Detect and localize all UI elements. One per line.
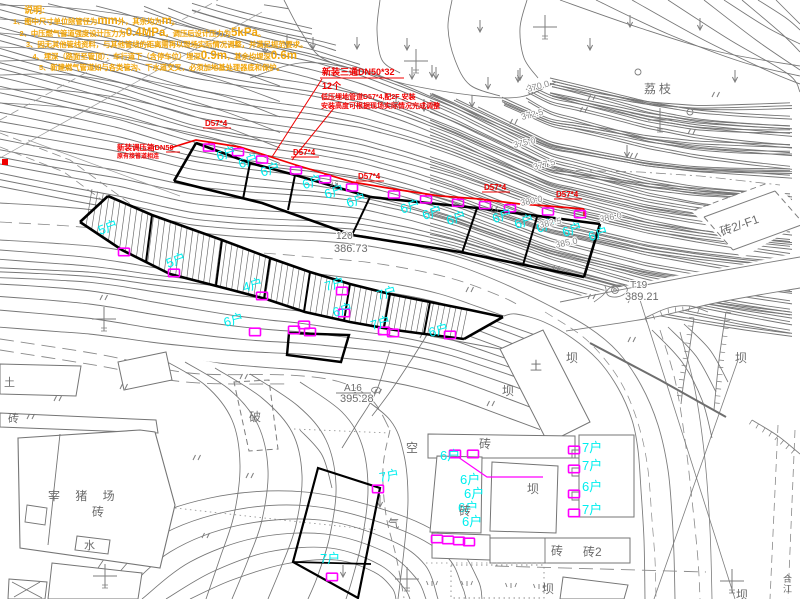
svg-text:砖: 砖 <box>551 543 563 558</box>
svg-text:说明:: 说明: <box>24 4 45 15</box>
svg-text:砖: 砖 <box>8 411 19 425</box>
svg-text:坝: 坝 <box>527 482 539 496</box>
svg-text:坝: 坝 <box>566 351 578 365</box>
svg-text:1、图中尺寸单位除管径为mm外，其余均为m。: 1、图中尺寸单位除管径为mm外，其余均为m。 <box>13 15 179 27</box>
svg-text:坝: 坝 <box>502 384 514 398</box>
svg-text:土: 土 <box>530 359 542 373</box>
svg-text:7户: 7户 <box>582 502 602 517</box>
svg-text:6户: 6户 <box>582 479 602 494</box>
svg-text:坝: 坝 <box>736 588 748 599</box>
svg-text:土: 土 <box>4 376 15 389</box>
svg-text:砖: 砖 <box>459 503 471 518</box>
svg-text:7户: 7户 <box>582 440 602 455</box>
svg-text:安装高度可根据现场实际情况完成调整: 安装高度可根据现场实际情况完成调整 <box>321 101 440 110</box>
svg-text:4、埋深（路面至管顶）：车行道下（含停车位）埋深0.9m，其: 4、埋深（路面至管顶）：车行道下（含停车位）埋深0.9m，其余均埋深0.6m <box>33 50 297 62</box>
svg-text:坝: 坝 <box>735 351 747 365</box>
svg-text:原有接管道相连: 原有接管道相连 <box>117 152 160 160</box>
svg-text:荔枝: 荔枝 <box>644 81 674 96</box>
svg-text:D57*4: D57*4 <box>205 119 228 128</box>
svg-text:合: 合 <box>783 573 792 584</box>
svg-text:3、因无其他管线资料，与其他管线的距离需再以现场实际情况调整: 3、因无其他管线资料，与其他管线的距离需再以现场实际情况调整，并满足规范要求。 <box>26 40 307 49</box>
svg-text:D57*4: D57*4 <box>293 148 316 157</box>
svg-text:新装三通DN50*32: 新装三通DN50*32 <box>322 66 395 77</box>
svg-text:气: 气 <box>388 516 399 530</box>
svg-text:水: 水 <box>84 539 95 552</box>
svg-text:386.73: 386.73 <box>334 243 368 255</box>
svg-text:5、新建燃气管道如与各类管沟、下水道交叉，必须加地基处理器底: 5、新建燃气管道如与各类管沟、下水道交叉，必须加地基处理器底和保护。 <box>39 63 284 72</box>
svg-text:砖: 砖 <box>479 436 491 451</box>
svg-text:宰 猪 场: 宰 猪 场 <box>48 488 121 503</box>
svg-text:D57*4: D57*4 <box>358 172 381 181</box>
svg-text:D57*4: D57*4 <box>556 190 579 199</box>
svg-text:砖: 砖 <box>92 504 104 519</box>
svg-text:120: 120 <box>336 231 353 242</box>
svg-text:6户: 6户 <box>440 448 460 463</box>
svg-text:坝: 坝 <box>542 582 554 596</box>
svg-text:2.5: 2.5 <box>490 208 499 214</box>
svg-text:7户: 7户 <box>320 551 340 566</box>
svg-text:6户: 6户 <box>460 472 480 487</box>
svg-text:7户: 7户 <box>582 458 602 473</box>
svg-text:新装调压箱DN50: 新装调压箱DN50 <box>117 142 174 152</box>
svg-text:2.5: 2.5 <box>330 182 339 188</box>
svg-text:江: 江 <box>783 584 792 594</box>
svg-text:6户: 6户 <box>464 486 484 501</box>
svg-text:T19: T19 <box>630 280 648 291</box>
svg-text:低压埋地管道D57*4,配2F 安装: 低压埋地管道D57*4,配2F 安装 <box>320 92 416 101</box>
svg-text:389.21: 389.21 <box>625 291 659 303</box>
svg-text:395.28: 395.28 <box>340 393 374 405</box>
svg-text:破: 破 <box>249 409 261 424</box>
svg-text:空: 空 <box>406 441 418 455</box>
svg-text:12个: 12个 <box>322 80 342 91</box>
svg-text:D57*4: D57*4 <box>484 183 507 192</box>
svg-text:2、中压燃气管道强度设计压力为0.4MPa，调压后设计压力为: 2、中压燃气管道强度设计压力为0.4MPa，调压后设计压力为5kPa。 <box>20 27 266 39</box>
svg-text:砖2: 砖2 <box>583 544 602 559</box>
